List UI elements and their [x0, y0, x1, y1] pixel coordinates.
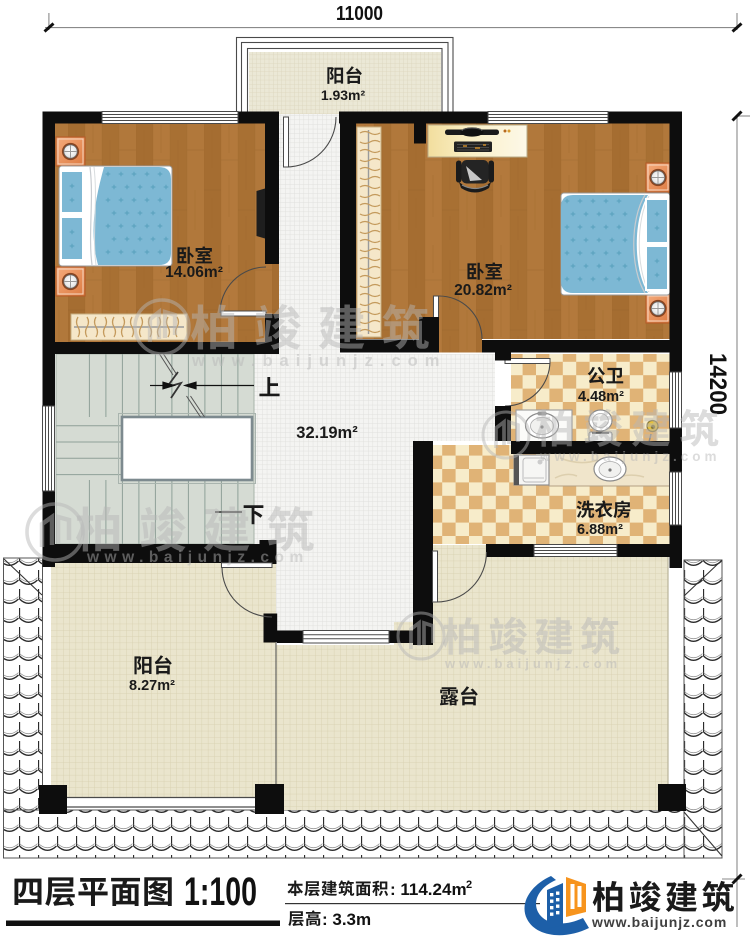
svg-text:www.baijunjz.com: www.baijunjz.com — [444, 656, 621, 671]
svg-text:2: 2 — [466, 879, 472, 891]
svg-text:www.baijunjz.com: www.baijunjz.com — [86, 549, 309, 566]
svg-text:20.82m²: 20.82m² — [454, 282, 512, 299]
svg-text:14200: 14200 — [704, 353, 731, 415]
svg-text:www.baijunjz.com: www.baijunjz.com — [539, 449, 721, 464]
svg-text:www.baijunjz.com: www.baijunjz.com — [191, 352, 446, 370]
svg-text:1.93m²: 1.93m² — [321, 87, 366, 103]
svg-text:8.27m²: 8.27m² — [129, 678, 175, 694]
svg-text:6.88m²: 6.88m² — [577, 522, 623, 538]
svg-text:1:100: 1:100 — [184, 870, 257, 914]
svg-text:: 3.3m: : 3.3m — [322, 910, 371, 929]
svg-text:: 114.24m: : 114.24m — [390, 880, 467, 899]
svg-text:32.19m²: 32.19m² — [296, 424, 358, 442]
svg-text:4.48m²: 4.48m² — [578, 389, 624, 405]
svg-text:11000: 11000 — [336, 3, 383, 25]
svg-text:www.baijunjz.com: www.baijunjz.com — [591, 914, 727, 930]
svg-text:14.06m²: 14.06m² — [165, 264, 223, 281]
